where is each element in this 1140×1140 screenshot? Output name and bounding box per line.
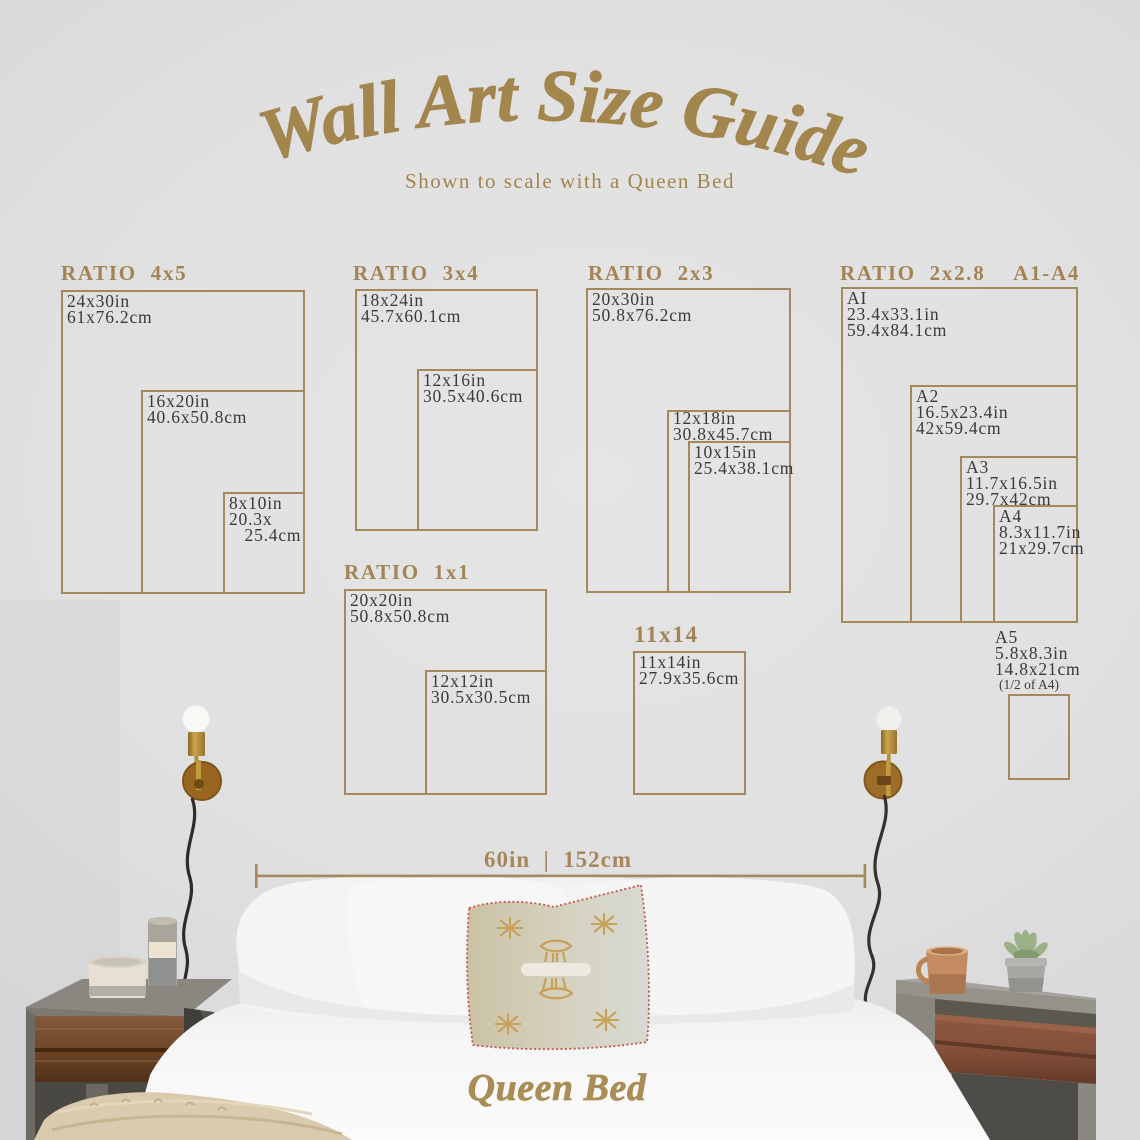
svg-text:Shown to scale with a Queen Be: Shown to scale with a Queen Bed bbox=[405, 169, 735, 193]
svg-text:60in | 152cm: 60in | 152cm bbox=[484, 847, 632, 872]
svg-text:Queen Bed: Queen Bed bbox=[468, 1067, 647, 1109]
